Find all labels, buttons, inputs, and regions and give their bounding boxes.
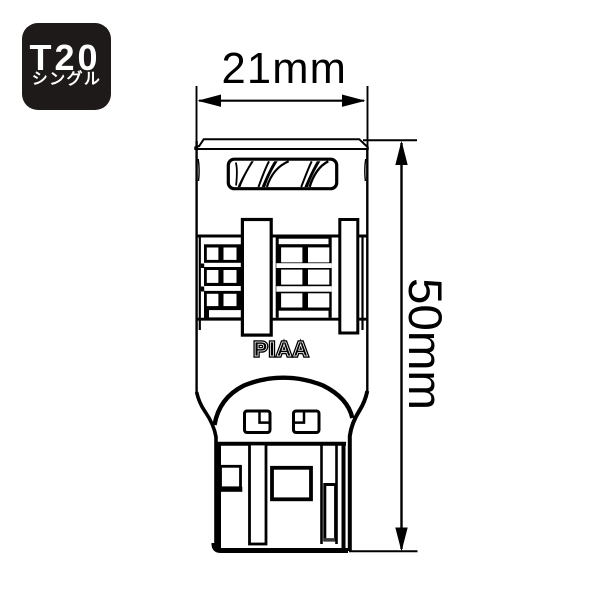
svg-text:50mm: 50mm [398,278,451,410]
svg-text:21mm: 21mm [221,45,347,93]
svg-text:PIAA: PIAA [254,338,310,361]
svg-text:シングル: シングル [32,69,102,88]
